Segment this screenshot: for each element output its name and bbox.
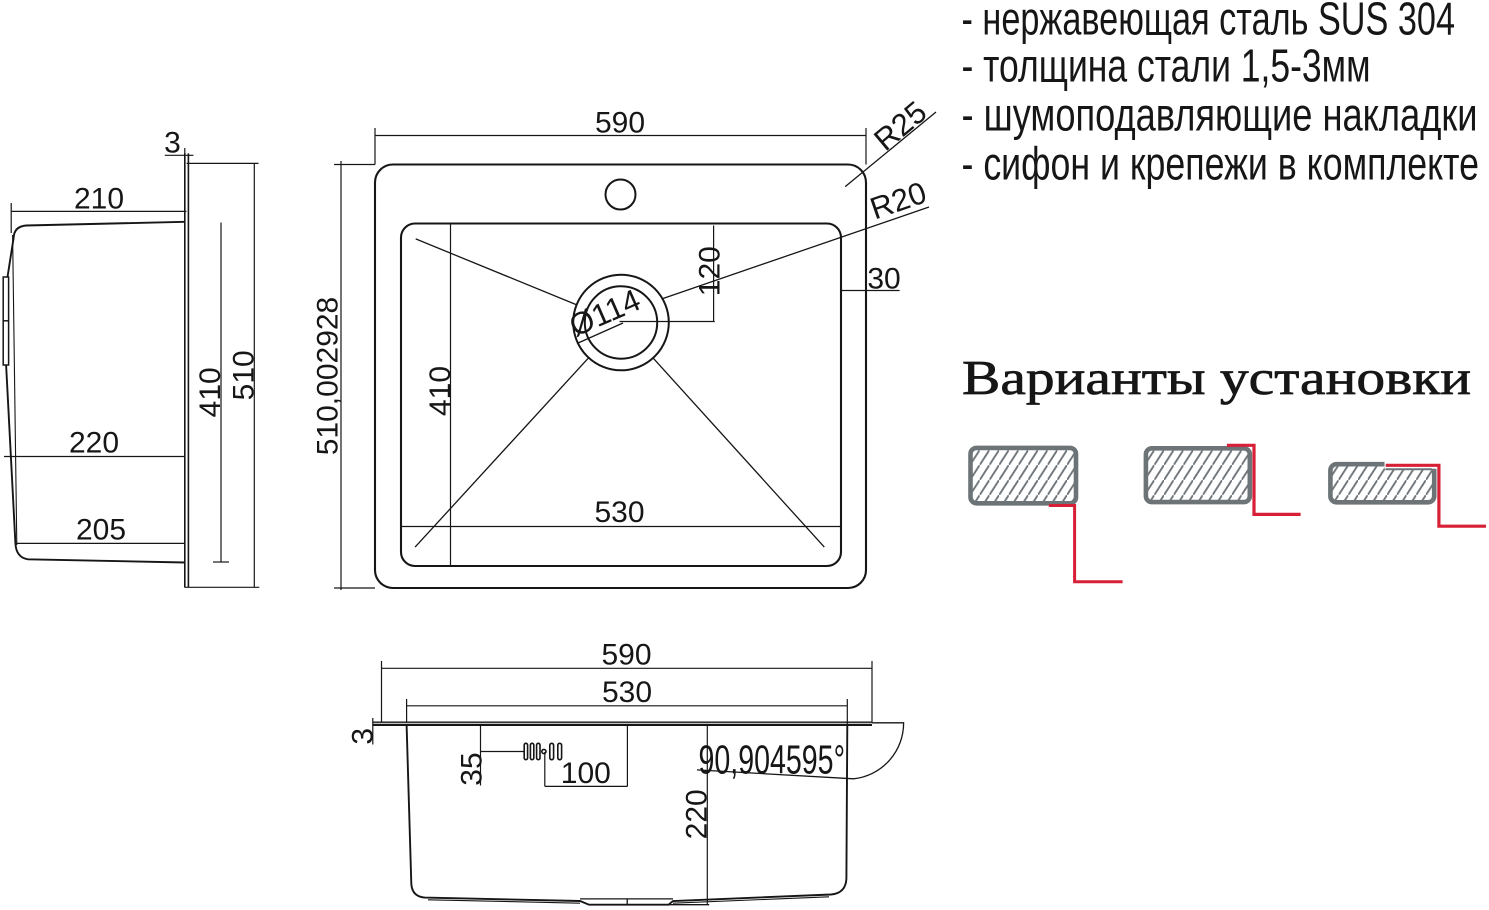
svg-text:590: 590 — [601, 639, 651, 672]
svg-text:30: 30 — [867, 263, 900, 296]
svg-text:410: 410 — [424, 366, 457, 416]
svg-text:R20: R20 — [866, 175, 931, 227]
svg-text:205: 205 — [76, 514, 126, 547]
svg-text:3: 3 — [164, 127, 181, 160]
svg-text:530: 530 — [594, 496, 644, 529]
svg-text:Варианты установки: Варианты установки — [962, 350, 1471, 405]
svg-text:590: 590 — [595, 107, 645, 140]
svg-text:510,002928: 510,002928 — [312, 297, 345, 456]
svg-text:120: 120 — [693, 246, 726, 296]
svg-text:210: 210 — [74, 183, 124, 216]
svg-text:90,904595°: 90,904595° — [699, 737, 846, 783]
svg-text:410: 410 — [194, 367, 227, 417]
svg-text:- толщина стали 1,5-3мм: - толщина стали 1,5-3мм — [962, 40, 1371, 92]
svg-text:530: 530 — [602, 676, 652, 709]
svg-text:510: 510 — [228, 350, 261, 400]
svg-text:3: 3 — [346, 728, 379, 745]
svg-text:Ø114: Ø114 — [564, 282, 645, 343]
svg-text:220: 220 — [69, 427, 119, 460]
svg-text:- нержавеющая сталь SUS 304: - нержавеющая сталь SUS 304 — [962, 0, 1456, 45]
svg-text:R25: R25 — [867, 94, 933, 157]
svg-text:100: 100 — [561, 757, 611, 790]
svg-text:220: 220 — [680, 789, 713, 839]
svg-text:- сифон и крепежи в комплекте: - сифон и крепежи в комплекте — [962, 137, 1480, 189]
svg-text:- шумоподавляющие накладки: - шумоподавляющие накладки — [962, 89, 1478, 141]
svg-text:35: 35 — [456, 752, 489, 785]
